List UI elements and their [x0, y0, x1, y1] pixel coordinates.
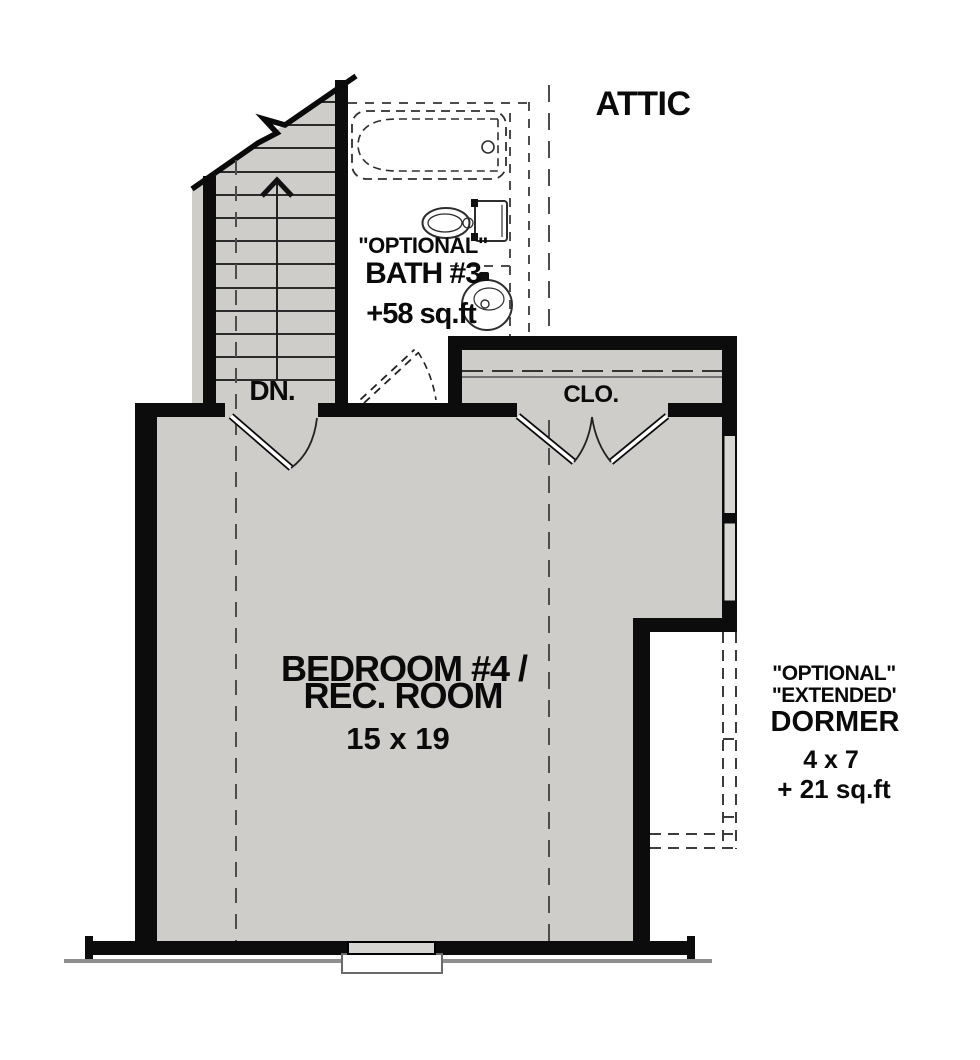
left-exterior-wall: [135, 403, 157, 955]
lower-right-vertical-wall: [633, 618, 650, 948]
bath-door-leaf-line-2: [364, 353, 418, 403]
dormer-name-label: DORMER: [771, 706, 900, 738]
floor-plan-page: ATTIC DN. "OPTIONAL" BATH #3 +58 sq.ft C…: [0, 0, 980, 1060]
lower-right-horizontal-wall: [635, 618, 737, 632]
closet-top-wall: [448, 336, 737, 350]
entry-stoop: [342, 954, 442, 973]
bottom-wall-window: [348, 942, 435, 954]
bath-name-label: BATH #3: [365, 257, 481, 290]
attic-label: ATTIC: [595, 85, 690, 123]
bedroom-name-line2: REC. ROOM: [303, 675, 502, 716]
bottom-wall-right-cap: [687, 936, 695, 960]
window-pane-upper: [725, 436, 736, 513]
toilet-bowl-inner: [428, 214, 462, 232]
sink-bowl-inner: [474, 288, 504, 310]
sink-drain: [481, 300, 489, 308]
toilet-tank-tab-top: [471, 199, 478, 207]
dormer-qualifier-line1: "OPTIONAL": [772, 662, 895, 685]
bathtub-basin: [358, 119, 498, 171]
bathtub: [352, 111, 506, 179]
floor-plan-drawing: ATTIC DN. "OPTIONAL" BATH #3 +58 sq.ft C…: [0, 0, 980, 1060]
closet-bottom-right-jamb: [668, 403, 722, 417]
bath-bottom-wall: [318, 403, 517, 417]
stairs-down-label: DN.: [249, 375, 294, 406]
stair-right-wall: [335, 80, 348, 403]
dormer-dimensions-label: 4 x 7: [803, 746, 859, 774]
bath-qualifier-label: "OPTIONAL": [358, 233, 488, 258]
dormer-outline: [650, 632, 736, 849]
bath-door-leaf-line-1: [361, 350, 415, 400]
dormer-area-label: + 21 sq.ft: [777, 774, 891, 804]
optional-bath-door: [361, 350, 437, 404]
closet-label: CLO.: [563, 381, 618, 408]
bathtub-drain: [482, 141, 494, 153]
dormer-qualifier-line2: "EXTENDED': [772, 684, 896, 707]
bath-area-label: +58 sq.ft: [366, 298, 477, 330]
window-pane-lower: [725, 524, 736, 601]
bedroom-dimensions-label: 15 x 19: [346, 721, 449, 756]
stair-left-wall: [203, 176, 216, 403]
bath-door-swing-arc: [418, 352, 436, 400]
bedroom-top-wall-left: [135, 403, 225, 417]
bottom-wall-left-cap: [85, 936, 93, 960]
